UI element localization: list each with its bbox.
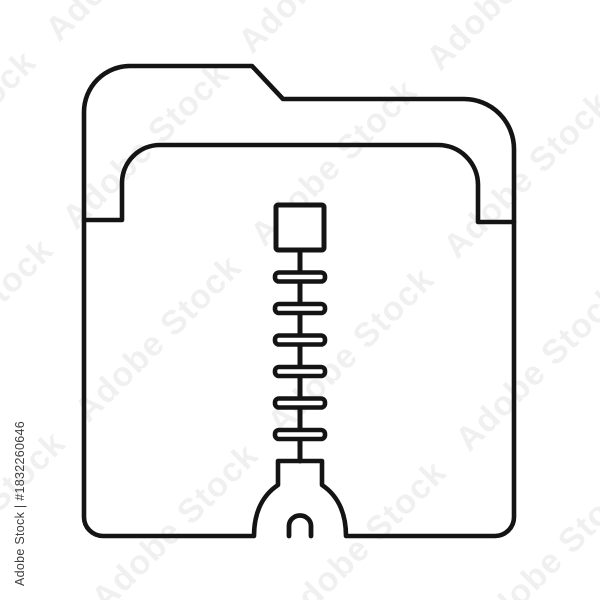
- preview-canvas: Adobe StockAdobe StockAdobe StockAdobe S…: [0, 0, 600, 600]
- zipper-tooth-icon: [275, 304, 325, 313]
- zipper-tooth-icon: [275, 273, 325, 282]
- zipper-tooth-icon: [275, 399, 325, 408]
- stock-photo-preview: { "watermark": { "text": "Adobe Stock", …: [0, 0, 600, 600]
- stock-credit-label: Adobe Stock | #1832260646: [13, 421, 27, 586]
- zipper-pull-hole-icon: [289, 516, 311, 537]
- zipper-tooth-icon: [275, 367, 325, 376]
- zipper-slider-box-icon: [276, 205, 324, 250]
- zip-folder-icon: [0, 0, 600, 600]
- zipper-tooth-icon: [275, 430, 325, 439]
- zipper-tooth-icon: [275, 336, 325, 345]
